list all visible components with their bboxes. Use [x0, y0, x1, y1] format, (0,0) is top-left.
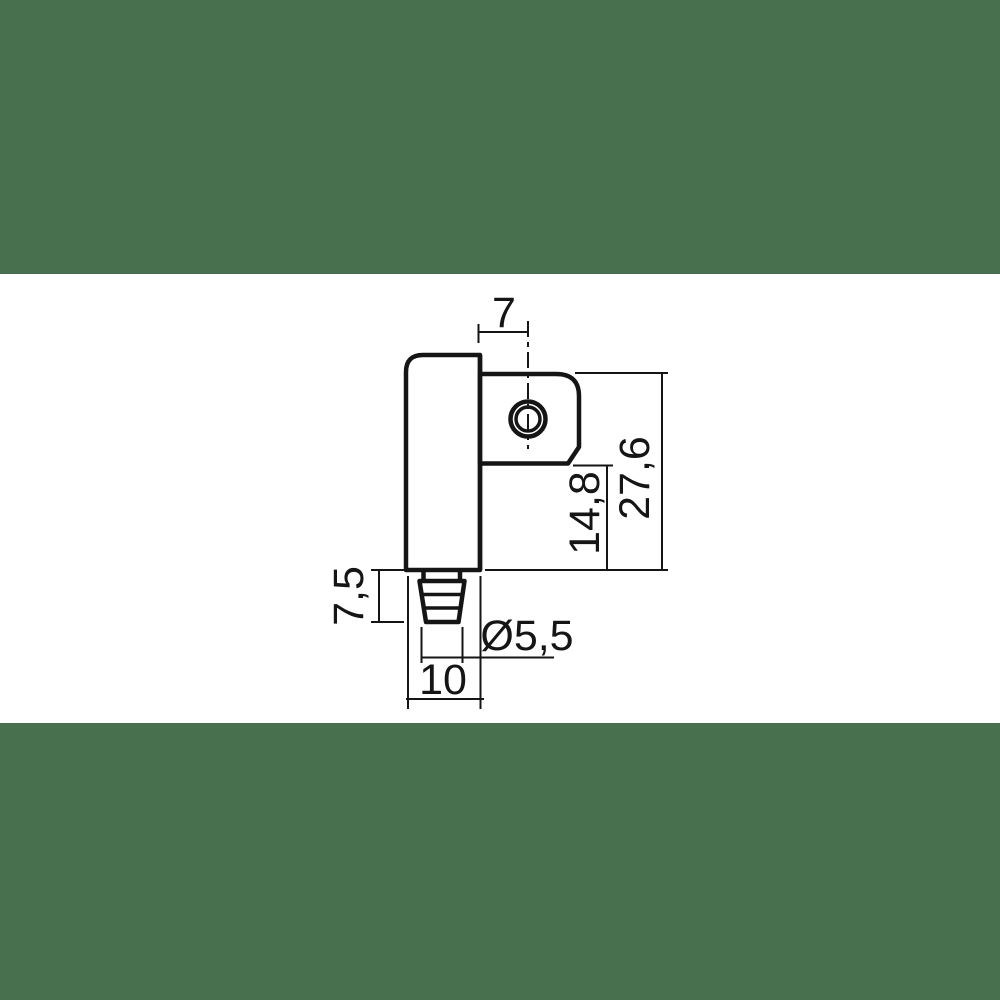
- part-clamp-block-outline: [480, 374, 579, 464]
- dim-7-label: 7: [492, 289, 516, 337]
- dim-10-label: 10: [419, 656, 467, 704]
- dim-148-label: 14,8: [561, 471, 609, 555]
- dim-276-label: 27,6: [611, 436, 659, 520]
- dim-75-label: 7,5: [325, 566, 373, 626]
- dim-55-label: Ø5,5: [480, 612, 573, 660]
- part-body-outline: [406, 355, 480, 570]
- page-background: 7 27,6 14,8 7,5 Ø5,5 10: [0, 0, 1000, 1000]
- technical-drawing: 7 27,6 14,8 7,5 Ø5,5 10: [0, 0, 1000, 1000]
- barb-outline: [420, 581, 465, 622]
